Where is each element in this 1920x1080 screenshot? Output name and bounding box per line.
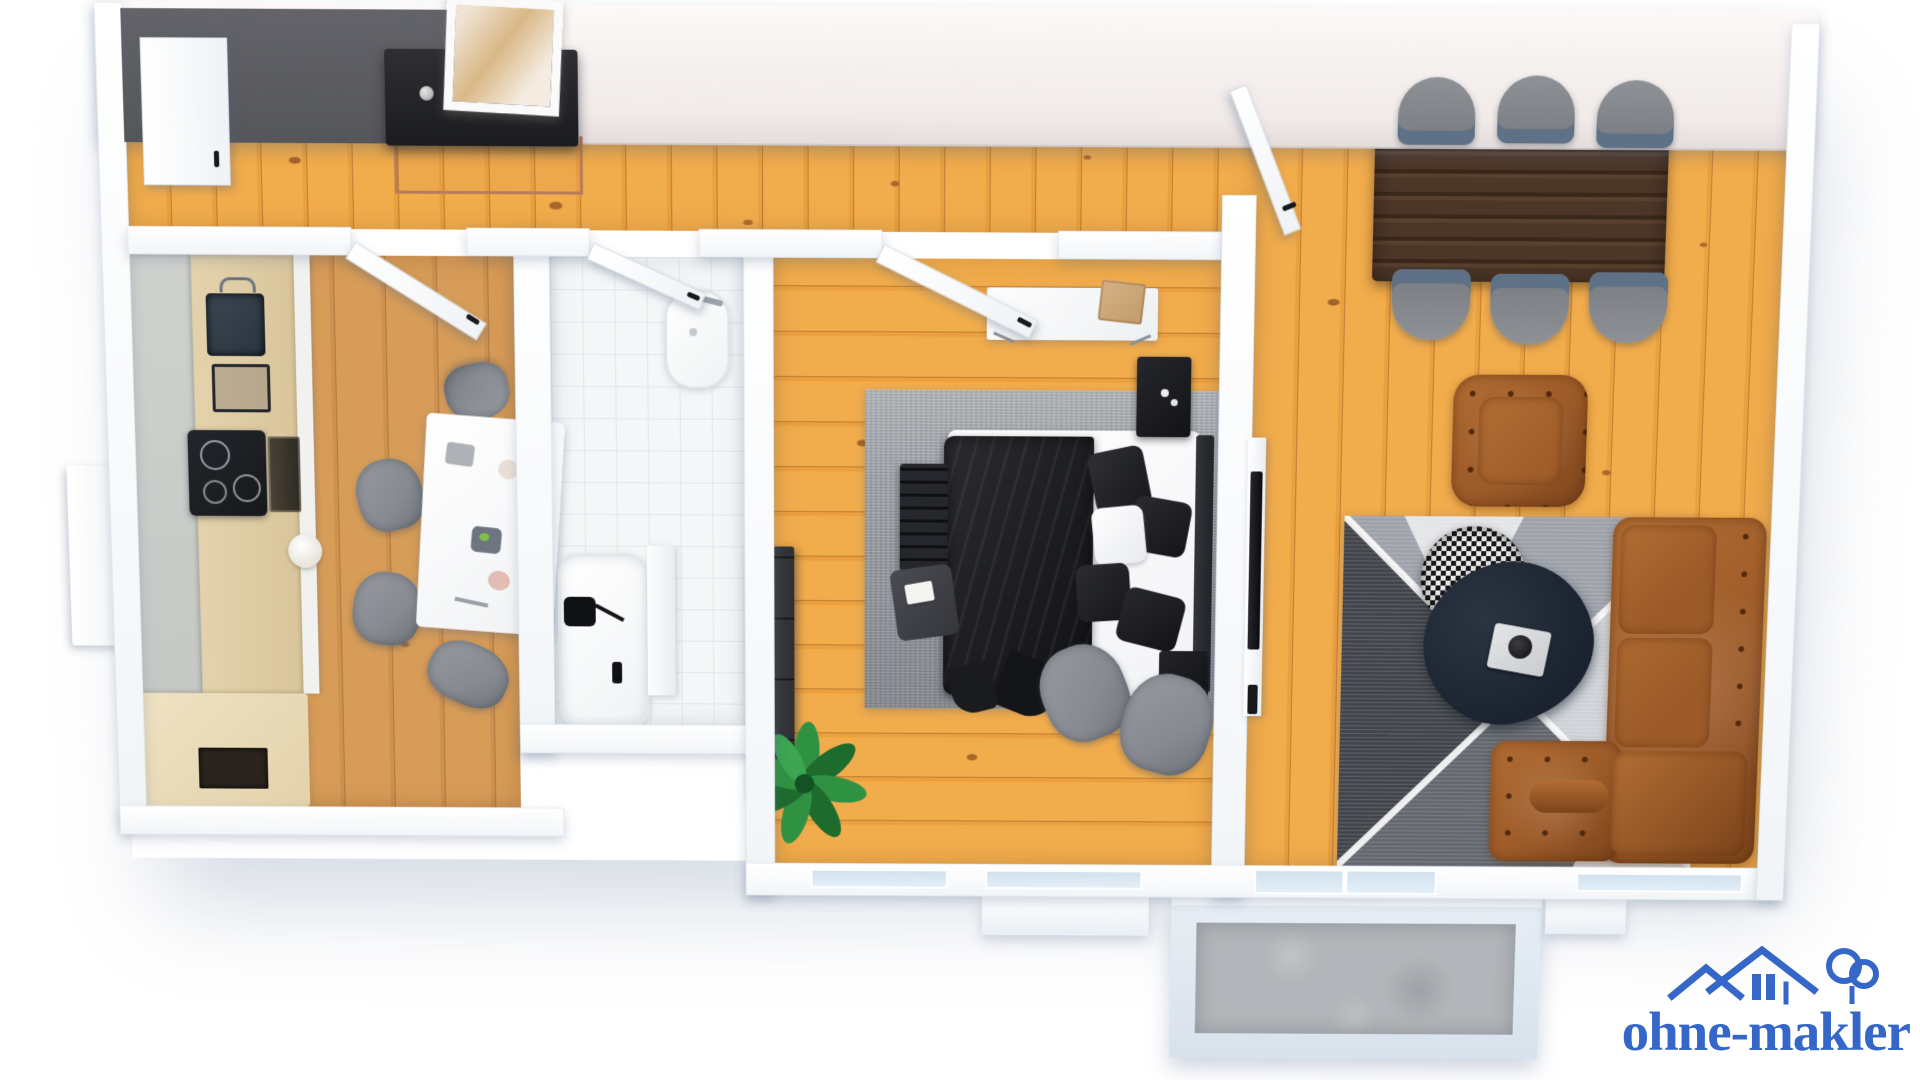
wall-bath-bottom bbox=[520, 724, 775, 755]
foot-bench bbox=[900, 464, 948, 571]
apartment-plan bbox=[0, 0, 1920, 1067]
wall-bath-bedroom bbox=[743, 229, 775, 895]
balcony-door-divider bbox=[1342, 870, 1347, 895]
sofa-cushion bbox=[1614, 638, 1713, 748]
floor-plan-canvas: ohne-makler bbox=[0, 0, 1920, 1080]
wall-hall-bedroom-2 bbox=[1058, 231, 1222, 260]
dark-throw bbox=[889, 563, 960, 641]
leather-armchair-seat bbox=[1477, 397, 1564, 485]
window-sill bbox=[1545, 899, 1626, 934]
kitchen-kettle bbox=[288, 534, 323, 568]
wall-hall-kitchen bbox=[127, 226, 352, 256]
cardboard-box bbox=[1098, 280, 1147, 325]
balcony-floor bbox=[1195, 923, 1516, 1035]
cooktop-ring bbox=[233, 474, 262, 502]
framed-artwork bbox=[443, 0, 563, 117]
cooktop-ring bbox=[200, 440, 231, 470]
wall-hall-bedroom bbox=[699, 229, 883, 258]
kitchen-sink bbox=[206, 293, 266, 356]
cooktop-ring bbox=[203, 480, 228, 504]
bathtub bbox=[557, 553, 650, 728]
living-window bbox=[1576, 873, 1743, 893]
bedroom-window bbox=[985, 870, 1142, 890]
wall-hall-bath bbox=[466, 228, 590, 257]
sofa-bolster bbox=[1529, 780, 1609, 813]
console-knob bbox=[419, 86, 433, 100]
wall-kitchen-bath bbox=[513, 228, 556, 753]
bedroom-window bbox=[811, 869, 948, 889]
kitchen-induction-cooktop bbox=[187, 430, 267, 516]
houses-and-tree-icon bbox=[1666, 944, 1886, 1008]
entry-door-handle bbox=[214, 151, 220, 167]
kitchen-spice-rack bbox=[212, 364, 271, 412]
kitchen-built-in-oven bbox=[268, 436, 302, 512]
wall-kitchen-bottom bbox=[119, 805, 564, 836]
brand-logo-text: ohne-makler bbox=[1618, 1002, 1910, 1066]
sofa-cushion bbox=[1610, 751, 1748, 856]
bath-cabinet bbox=[647, 546, 676, 696]
brand-logo: ohne-makler bbox=[1618, 944, 1914, 1070]
shower-fixture bbox=[564, 597, 596, 627]
table-setting-board bbox=[445, 441, 475, 467]
bed-pillow-white bbox=[1091, 504, 1148, 566]
floor-entry-hall bbox=[124, 140, 1257, 234]
sofa-cushion bbox=[1618, 525, 1717, 634]
tv-soundbar bbox=[1247, 685, 1257, 714]
washbasin-drain bbox=[689, 328, 697, 336]
kitchen-shelf-niche bbox=[198, 748, 268, 789]
shower-head bbox=[612, 662, 622, 684]
kitchen-faucet bbox=[219, 277, 256, 292]
window-sill bbox=[982, 897, 1149, 936]
table-setting-greens bbox=[479, 533, 489, 541]
